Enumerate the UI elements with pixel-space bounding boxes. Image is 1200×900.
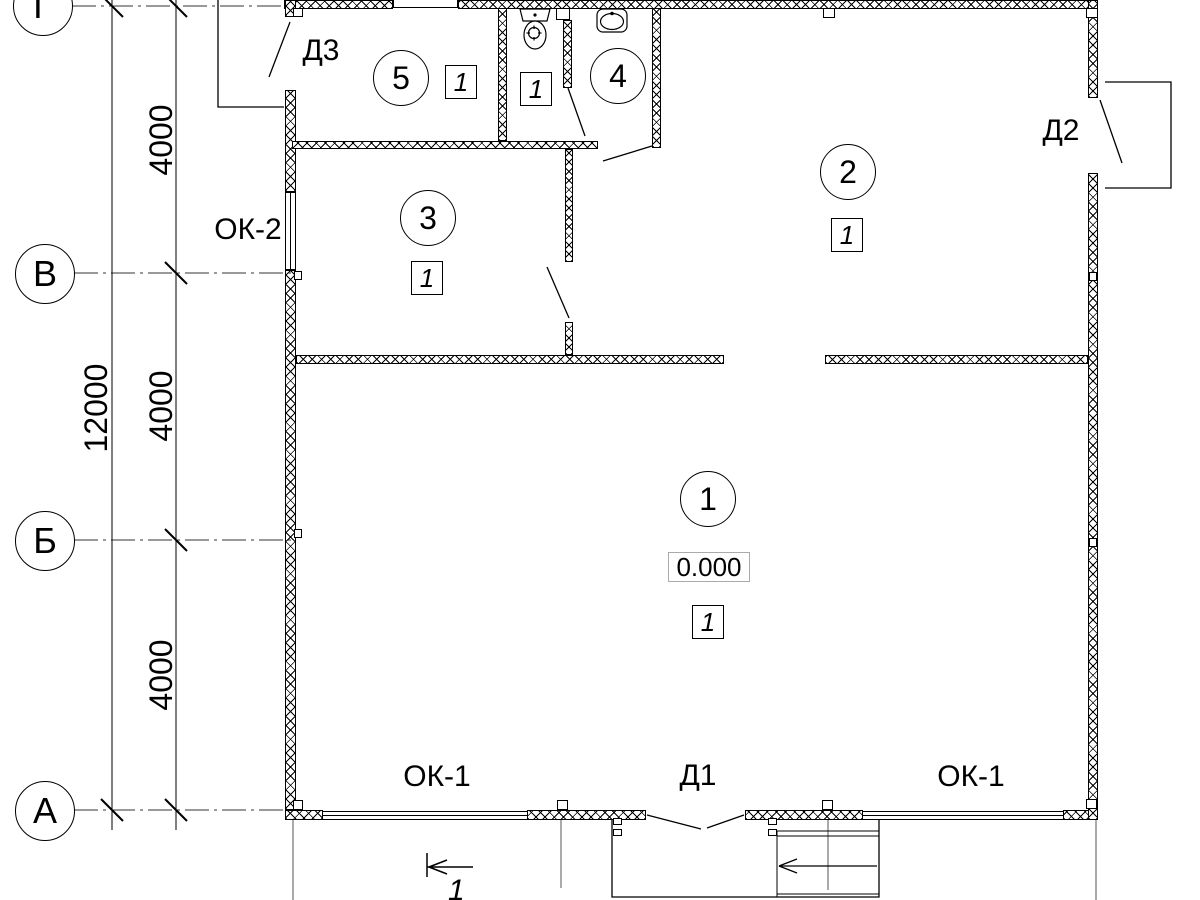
dim-12000: 12000 (78, 343, 114, 473)
room-number-4: 4 (609, 58, 627, 95)
door-leaf-d1-left (647, 815, 701, 829)
door-leaf-room4 (603, 146, 652, 161)
sink-icon (597, 9, 627, 32)
room-bubble-4: 4 (590, 48, 646, 104)
room-number-2: 2 (839, 154, 857, 191)
extension-lines (293, 820, 1096, 900)
category-marker-room5: 1 (445, 65, 477, 99)
axis-label-v: В (33, 253, 57, 295)
door-leaf-wc (568, 88, 585, 136)
section-mark-number: 1 (448, 874, 465, 900)
dim-4000-mid: 4000 (143, 341, 179, 471)
dim-4000-top: 4000 (143, 75, 179, 205)
label-ok1-right: ОК-1 (937, 760, 1005, 794)
door-leaf-d1-right (707, 815, 744, 828)
dim-4000-bot: 4000 (143, 610, 179, 740)
room-bubble-3: 3 (400, 190, 456, 246)
label-d2: Д2 (1042, 114, 1079, 148)
room-number-1: 1 (699, 481, 717, 518)
axis-bubble-v: В (15, 244, 75, 304)
room-bubble-2: 2 (820, 144, 876, 200)
label-d1: Д1 (679, 759, 716, 793)
porch-top-left (218, 0, 284, 107)
elevation-mark: 0.000 (668, 552, 750, 582)
category-marker-room1: 1 (692, 605, 724, 639)
axis-label-g: Г (33, 0, 53, 27)
floor-plan-canvas: Г В Б А 4000 4000 4000 12000 5 4 3 2 1 1… (0, 0, 1200, 900)
porch-right (1105, 82, 1171, 188)
category-marker-wc: 1 (520, 72, 552, 106)
elevation-value: 0.000 (676, 552, 741, 583)
door-leaves (269, 22, 1122, 829)
axis-bubble-a: А (15, 781, 75, 841)
label-ok1-left: ОК-1 (403, 760, 471, 794)
room-bubble-5: 5 (373, 50, 429, 106)
toilet-icon (520, 9, 550, 49)
room-number-3: 3 (419, 200, 437, 237)
axis-label-b: Б (33, 520, 57, 562)
label-d3: Д3 (302, 34, 339, 68)
room-bubble-1: 1 (680, 471, 736, 527)
door-leaf-room3 (547, 267, 569, 318)
door-leaf-d2 (1100, 100, 1122, 163)
linework-layer (0, 0, 1200, 900)
label-ok2: ОК-2 (214, 213, 282, 247)
axis-label-a: А (33, 790, 57, 832)
category-marker-room3: 1 (411, 261, 443, 295)
category-marker-room2: 1 (831, 218, 863, 252)
porch-entrance (612, 820, 879, 897)
axis-bubble-b: Б (15, 511, 75, 571)
door-leaf-d3 (269, 22, 290, 77)
room-number-5: 5 (392, 60, 410, 97)
